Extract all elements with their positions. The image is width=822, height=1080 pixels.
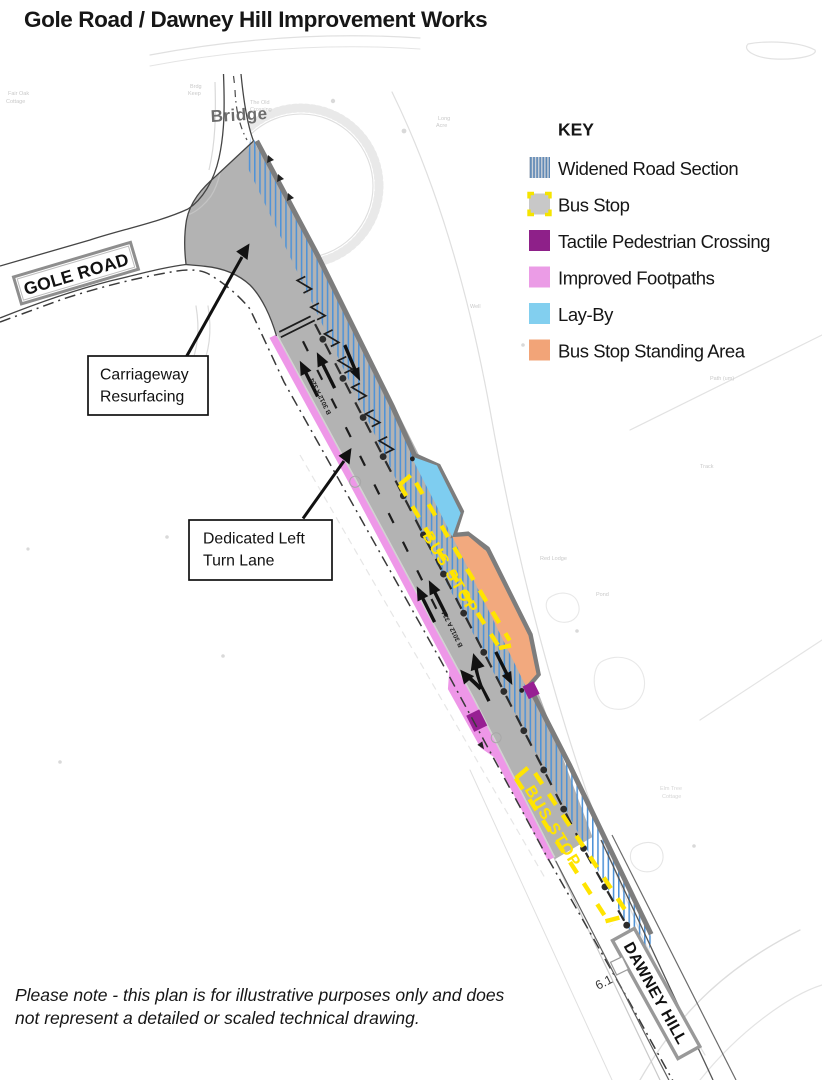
- svg-text:Carriageway: Carriageway: [100, 367, 189, 384]
- svg-text:Well: Well: [470, 304, 481, 310]
- svg-text:Pond: Pond: [596, 592, 609, 598]
- svg-text:Cottage: Cottage: [6, 99, 25, 105]
- svg-text:Red Lodge: Red Lodge: [540, 556, 567, 562]
- svg-text:Dedicated Left: Dedicated Left: [203, 531, 305, 548]
- svg-text:Cottage: Cottage: [662, 794, 681, 800]
- svg-text:Lay-By: Lay-By: [558, 304, 614, 325]
- svg-text:Elm Tree: Elm Tree: [660, 786, 682, 792]
- svg-text:Path (um): Path (um): [710, 376, 734, 382]
- svg-text:not represent a detailed or sc: not represent a detailed or scaled techn…: [15, 1008, 420, 1028]
- svg-text:Fair Oak: Fair Oak: [8, 91, 29, 97]
- svg-text:KEY: KEY: [558, 120, 594, 140]
- svg-text:Turn Lane: Turn Lane: [203, 553, 275, 570]
- svg-text:Acre: Acre: [436, 123, 447, 129]
- svg-text:Track: Track: [700, 464, 714, 470]
- svg-text:Brdg: Brdg: [190, 84, 202, 90]
- svg-text:Widened Road Section: Widened Road Section: [558, 158, 738, 179]
- svg-text:Resurfacing: Resurfacing: [100, 389, 184, 406]
- svg-text:6.1: 6.1: [593, 972, 615, 992]
- svg-text:Keep: Keep: [188, 91, 201, 97]
- svg-text:Bus Stop: Bus Stop: [558, 195, 630, 216]
- svg-text:Tactile Pedestrian Crossing: Tactile Pedestrian Crossing: [558, 231, 770, 252]
- svg-text:Bus Stop Standing Area: Bus Stop Standing Area: [558, 341, 746, 362]
- svg-text:Long: Long: [438, 116, 450, 122]
- svg-text:Improved Footpaths: Improved Footpaths: [558, 268, 715, 289]
- svg-text:Bridge: Bridge: [210, 104, 268, 126]
- svg-text:Gole Road / Dawney Hill Improv: Gole Road / Dawney Hill Improvement Work…: [24, 7, 487, 32]
- svg-text:Please note - this plan is for: Please note - this plan is for illustrat…: [15, 985, 505, 1005]
